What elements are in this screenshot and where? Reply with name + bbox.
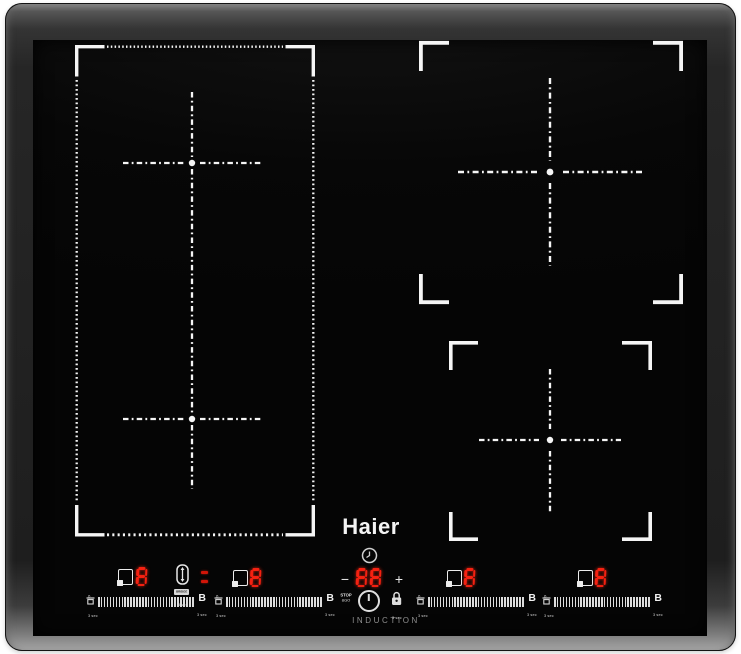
boost-hold-label: 3 sec <box>321 605 339 623</box>
timer-minus-button[interactable]: − <box>336 570 354 588</box>
power-slider-left-rear[interactable]: 0 3 sec B 3 sec <box>86 588 208 614</box>
hob-product-image: Haier INDUCTION BRIDGE 3 sec − + <box>0 0 741 654</box>
haier-logo: Haier <box>338 514 404 540</box>
power-display-right-rear <box>464 568 475 587</box>
lock-hold-label: 3 sec <box>388 608 406 626</box>
slider-ticks <box>98 596 194 607</box>
power-display-left-rear <box>136 567 147 586</box>
boost-hold-label: 3 sec <box>193 605 211 623</box>
pan-icon <box>86 596 95 605</box>
pan-icon <box>416 596 425 605</box>
slider-hold-label: 3 sec <box>414 606 432 624</box>
boost-key[interactable]: B <box>198 592 206 604</box>
slider-hold-label: 3 sec <box>540 606 558 624</box>
power-slider-right-front[interactable]: 0 3 sec B 3 sec <box>542 588 664 614</box>
boost-key[interactable]: B <box>528 592 536 604</box>
pot-select-icon <box>447 570 462 586</box>
power-display-left-front <box>250 568 261 587</box>
power-slider-right-rear[interactable]: 0 3 sec B 3 sec <box>416 588 538 614</box>
slider-hold-label: 3 sec <box>84 606 102 624</box>
slider-ticks <box>226 596 322 607</box>
boost-hold-label: 3 sec <box>649 605 667 623</box>
pot-select-icon <box>578 570 593 586</box>
clock-icon <box>361 547 378 564</box>
boost-key[interactable]: B <box>654 592 662 604</box>
pot-select-icon <box>233 570 248 586</box>
pot-select-icon <box>118 569 133 585</box>
slider-ticks <box>554 596 650 607</box>
slider-ticks <box>428 596 524 607</box>
pan-icon <box>542 596 551 605</box>
bridge-icon <box>176 564 189 585</box>
timer-display <box>356 568 382 587</box>
timer-plus-button[interactable]: + <box>390 570 408 588</box>
power-slider-left-front[interactable]: 0 3 sec B 3 sec <box>214 588 336 614</box>
power-display-right-front <box>595 568 606 587</box>
pan-icon <box>214 596 223 605</box>
bridge-indicator <box>201 569 209 585</box>
boost-hold-label: 3 sec <box>523 605 541 623</box>
lock-button[interactable] <box>390 591 403 606</box>
power-button[interactable] <box>358 590 380 612</box>
boost-key[interactable]: B <box>326 592 334 604</box>
slider-hold-label: 3 sec <box>212 606 230 624</box>
